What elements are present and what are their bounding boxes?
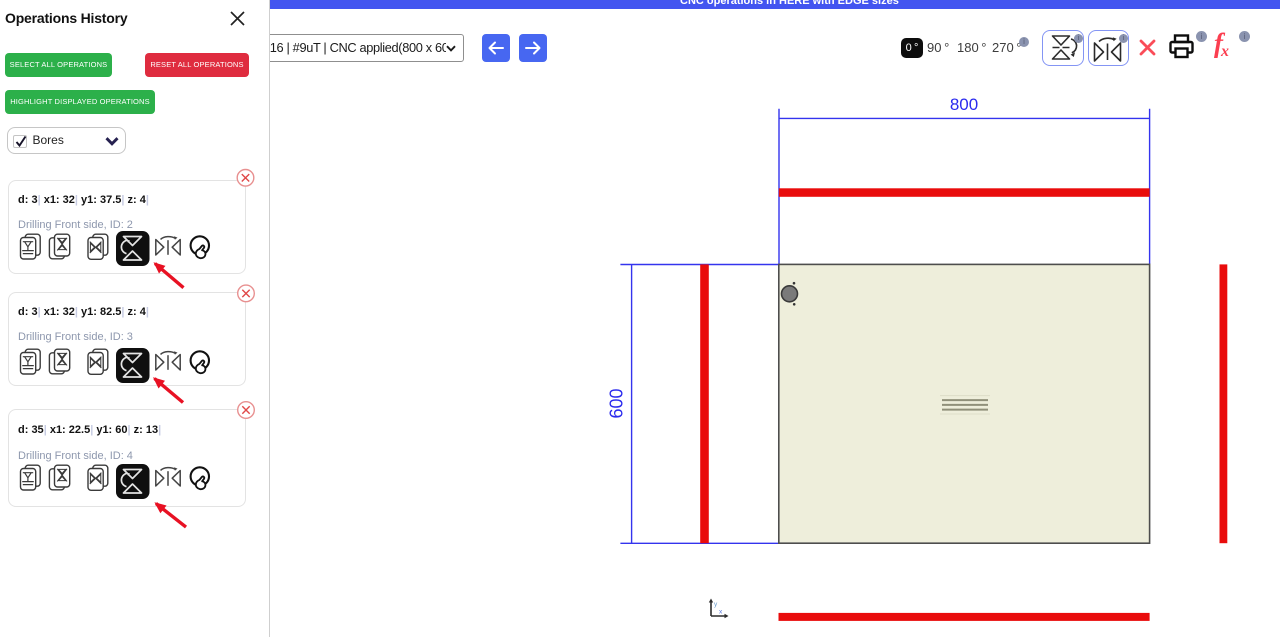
svg-text:x: x: [719, 609, 723, 616]
svg-text:y: y: [714, 601, 718, 608]
svg-text:600: 600: [607, 388, 627, 418]
svg-text:800: 800: [950, 95, 978, 114]
